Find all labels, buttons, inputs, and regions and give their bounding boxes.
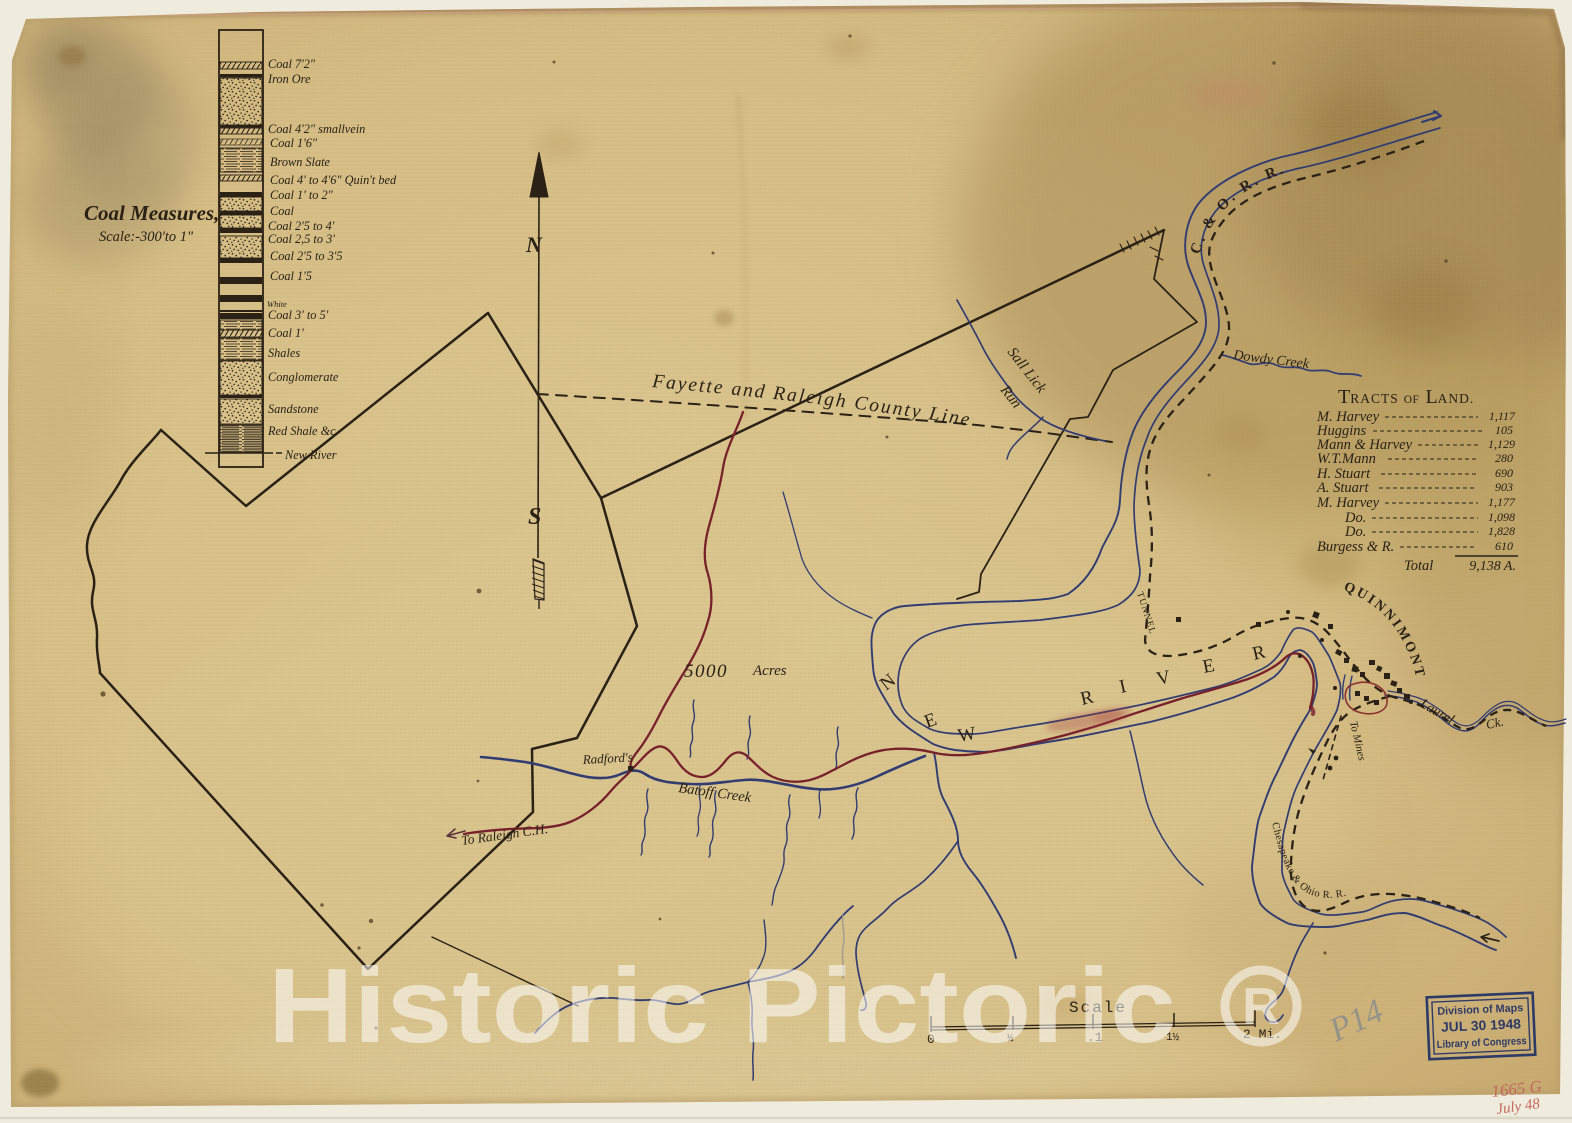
svg-text:Coal 4'2" smallvein: Coal 4'2" smallvein (268, 122, 365, 136)
svg-text:Total: Total (1404, 558, 1433, 574)
svg-text:Coal 4' to 4'6" Quin't bed: Coal 4' to 4'6" Quin't bed (270, 173, 397, 187)
svg-text:Coal 1'5: Coal 1'5 (270, 269, 312, 283)
svg-text:New River: New River (284, 448, 337, 462)
svg-text:Radford's: Radford's (581, 749, 633, 767)
svg-text:9,138 A.: 9,138 A. (1469, 559, 1516, 574)
svg-text:Conglomerate: Conglomerate (268, 370, 339, 384)
svg-text:Coal 2,5 to 3': Coal 2,5 to 3' (268, 232, 335, 246)
svg-text:Sandstone: Sandstone (268, 402, 319, 416)
svg-text:Acres: Acres (752, 663, 787, 679)
svg-text:N: N (525, 232, 543, 257)
svg-text:W: W (956, 723, 977, 747)
svg-text:Coal 1' to 2": Coal 1' to 2" (270, 188, 334, 202)
svg-text:5000: 5000 (684, 661, 728, 682)
svg-text:280: 280 (1495, 451, 1513, 465)
svg-text:Coal Measures,: Coal Measures, (84, 201, 219, 225)
svg-text:690: 690 (1495, 466, 1513, 480)
svg-text:1,828: 1,828 (1488, 524, 1515, 538)
svg-text:610: 610 (1495, 539, 1513, 553)
svg-text:1,129: 1,129 (1488, 437, 1515, 451)
svg-text:R: R (1242, 978, 1280, 1036)
svg-text:Do.: Do. (1344, 524, 1366, 540)
svg-text:Coal 2'5 to 3'5: Coal 2'5 to 3'5 (270, 249, 343, 263)
svg-text:Coal 1': Coal 1' (268, 326, 304, 340)
svg-text:Coal 7'2": Coal 7'2" (268, 57, 316, 71)
svg-text:Burgess & R.: Burgess & R. (1317, 539, 1394, 555)
svg-text:Red Shale &c.: Red Shale &c. (267, 424, 339, 438)
svg-text:1,098: 1,098 (1488, 510, 1515, 524)
svg-text:Coal 3' to 5': Coal 3' to 5' (268, 308, 329, 322)
svg-text:S: S (528, 504, 541, 530)
svg-text:W.T.Mann: W.T.Mann (1317, 451, 1376, 467)
svg-text:Shales: Shales (268, 346, 300, 360)
svg-text:105: 105 (1495, 423, 1513, 437)
svg-text:Coal 2'5 to 4': Coal 2'5 to 4' (268, 219, 335, 233)
svg-text:1,117: 1,117 (1489, 409, 1516, 423)
svg-text:Coal 1'6": Coal 1'6" (270, 136, 318, 150)
svg-text:1,177: 1,177 (1488, 495, 1516, 509)
svg-text:Iron Ore: Iron Ore (267, 72, 311, 86)
svg-text:Scale:-300'to 1": Scale:-300'to 1" (99, 229, 194, 245)
svg-text:903: 903 (1495, 480, 1513, 494)
svg-text:Coal: Coal (270, 204, 294, 218)
svg-text:M. Harvey: M. Harvey (1316, 495, 1380, 511)
svg-text:Brown Slate: Brown Slate (270, 155, 331, 169)
svg-text:Historic Pictoric: Historic Pictoric (268, 947, 1176, 1065)
svg-text:A. Stuart: A. Stuart (1316, 480, 1370, 496)
